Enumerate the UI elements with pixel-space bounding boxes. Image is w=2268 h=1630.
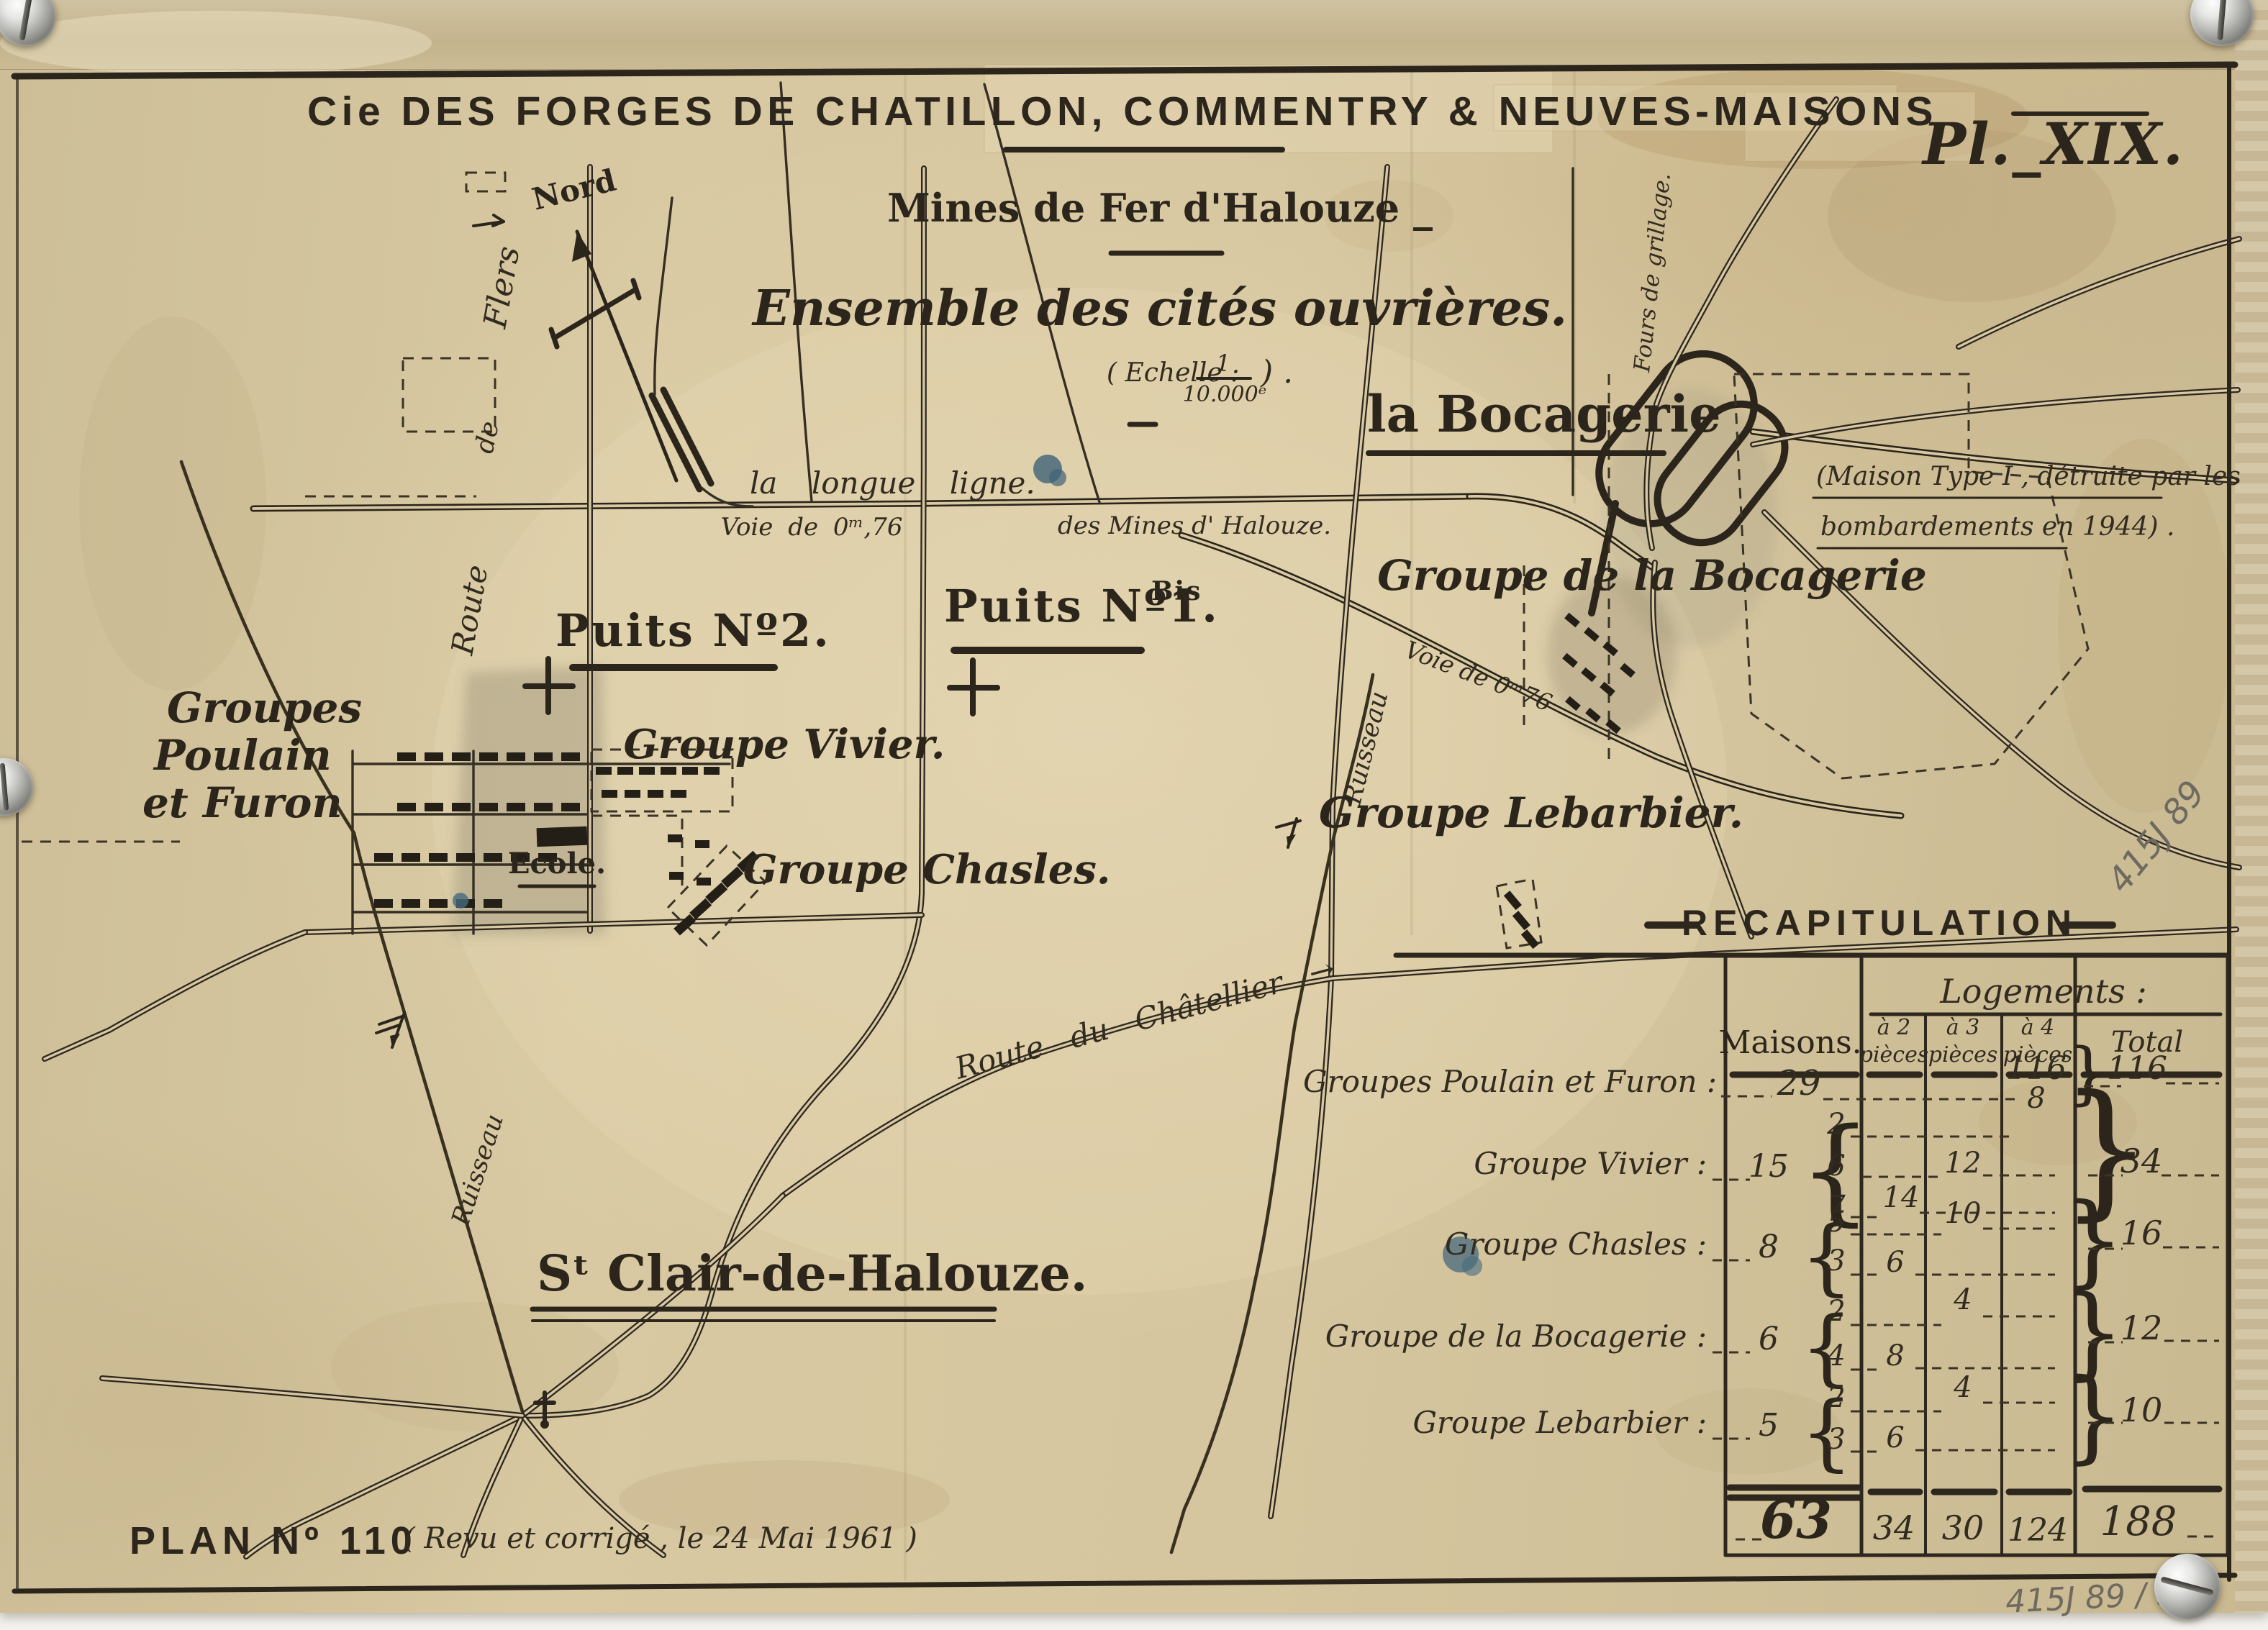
label-poulain: Poulain bbox=[153, 731, 332, 780]
label-groupe-lebarbier: Groupe Lebarbier. bbox=[1319, 788, 1743, 837]
rail-label-des-mines: des Mines d' Halouze. bbox=[1058, 511, 1331, 540]
total-3p: 30 bbox=[1942, 1508, 1984, 1547]
val-4p: 8 bbox=[2027, 1082, 2045, 1115]
scale-close: ) . bbox=[1260, 354, 1293, 391]
label-groupes: Groupes bbox=[167, 683, 362, 732]
row-total: 10 bbox=[2120, 1390, 2163, 1429]
val-3p: 4 bbox=[1953, 1371, 1972, 1404]
row-total: 16 bbox=[2120, 1214, 2163, 1252]
val-3p: 10 bbox=[1945, 1197, 1982, 1230]
screw-bottom-right bbox=[2154, 1554, 2221, 1620]
label-puits1-bis: Bis bbox=[1151, 576, 1202, 606]
ensemble-title: Ensemble des cités ouvrières. bbox=[751, 280, 1567, 337]
total-logements: 188 bbox=[2100, 1498, 2177, 1545]
scale-denominator: 10.000ᵉ bbox=[1183, 382, 1267, 407]
plan-number: PLAN Nº 110 bbox=[130, 1519, 417, 1562]
sub-maisons-1: 2 bbox=[1826, 1295, 1845, 1328]
label-ecole: Ecole. bbox=[508, 847, 606, 880]
row-label: Groupe de la Bocagerie : bbox=[1325, 1319, 1707, 1354]
col-maisons: Maisons. bbox=[1718, 1024, 1861, 1061]
row-maisons: 5 bbox=[1759, 1407, 1779, 1444]
row-label: Groupe Vivier : bbox=[1474, 1146, 1707, 1181]
sub-maisons-2: 4 bbox=[1826, 1339, 1845, 1372]
label-groupe-chasles: Groupe Chasles. bbox=[743, 846, 1111, 893]
table-totals: 63 34 30 124 188 bbox=[1736, 1489, 2219, 1550]
row-maisons: 8 bbox=[1759, 1229, 1779, 1265]
row-label: Groupe Lebarbier : bbox=[1412, 1405, 1707, 1440]
label-fours-grillage: Fours de grillage. bbox=[1629, 172, 1676, 374]
north-label: Nord bbox=[529, 163, 620, 217]
row-total: 12 bbox=[2120, 1308, 2163, 1347]
label-la-bocagerie: la Bocagerie bbox=[1367, 384, 1721, 444]
val-2p: 6 bbox=[1886, 1421, 1904, 1454]
col-2p-line2: pièces bbox=[1859, 1042, 1929, 1067]
scale-numerator: 1 bbox=[1216, 350, 1230, 377]
val-3p: 12 bbox=[1945, 1147, 1982, 1180]
label-st-clair: Sᵗ Clair-de-Halouze. bbox=[537, 1245, 1087, 1303]
val-2p: 14 bbox=[1883, 1181, 1920, 1214]
archive-cote-bottom: 415J 89 / 5 bbox=[2005, 1575, 2177, 1621]
row-label: Groupe Chasles : bbox=[1445, 1226, 1707, 1262]
sub-maisons-2: 6 bbox=[1827, 1149, 1845, 1183]
subtitle: Mines de Fer d'Halouze _ bbox=[887, 185, 1433, 231]
paper-stains bbox=[0, 11, 2231, 1539]
total-2p: 34 bbox=[1873, 1508, 1915, 1547]
revision-note: ( Revu et corrigé , le 24 Mai 1961 ) bbox=[404, 1522, 917, 1555]
label-groupe-bocagerie: Groupe de la Bocagerie bbox=[1377, 551, 1927, 600]
val-3p: 4 bbox=[1953, 1283, 1972, 1316]
row-maisons: 29 bbox=[1776, 1063, 1820, 1103]
val-2p: 6 bbox=[1886, 1246, 1904, 1279]
label-et-furon: et Furon bbox=[142, 778, 343, 827]
sub-maisons-2: 3 bbox=[1827, 1244, 1845, 1278]
row-maisons: 15 bbox=[1748, 1148, 1789, 1185]
rail-label-longue-ligne: la longue ligne. bbox=[750, 465, 1035, 501]
col-3p-line1: à 3 bbox=[1946, 1015, 1980, 1040]
road-label-de: de bbox=[470, 419, 505, 456]
col-logements: Logements : bbox=[1939, 972, 2147, 1011]
recap-title: RECAPITULATION bbox=[1682, 903, 2077, 943]
sub-maisons-2: 3 bbox=[1827, 1423, 1845, 1456]
flow-arrow-left bbox=[376, 1013, 404, 1047]
sub-maisons-1: 5 bbox=[1827, 1206, 1845, 1239]
label-groupe-vivier: Groupe Vivier. bbox=[624, 721, 945, 768]
plate-number: Pl._XIX. bbox=[1921, 110, 2185, 178]
row-total: 34 bbox=[2120, 1142, 2163, 1180]
note-line-1: (Maison Type I , détruite par les bbox=[1816, 462, 2241, 491]
road-label-flers: Flers bbox=[476, 244, 527, 332]
stream-label-ruisseau-left: Ruisseau bbox=[446, 1111, 509, 1230]
brace: } bbox=[2061, 1357, 2125, 1475]
col-2p-line1: à 2 bbox=[1877, 1015, 1911, 1040]
col-4p-line1: à 4 bbox=[2021, 1015, 2055, 1040]
ecole-building bbox=[537, 827, 588, 847]
label-puits2: Puits Nº2. bbox=[555, 604, 831, 657]
sub-maisons-1: 2 bbox=[1826, 1381, 1845, 1414]
main-title: Cie DES FORGES DE CHATILLON, COMMENTRY &… bbox=[307, 88, 1938, 135]
row-label: Groupes Poulain et Furon : bbox=[1303, 1064, 1717, 1099]
map-canvas: Cie DES FORGES DE CHATILLON, COMMENTRY &… bbox=[0, 0, 2268, 1630]
sub-maisons-1: 2 bbox=[1826, 1108, 1845, 1141]
flers-direction-arrow bbox=[473, 215, 504, 226]
row-maisons: 6 bbox=[1759, 1321, 1779, 1357]
rail-label-voie076-h: Voie de 0ᵐ,76 bbox=[721, 513, 903, 542]
total-4p: 124 bbox=[2008, 1512, 2068, 1549]
col-3p-line2: pièces bbox=[1928, 1042, 1998, 1067]
scanned-map-photo: Cie DES FORGES DE CHATILLON, COMMENTRY &… bbox=[0, 0, 2268, 1630]
note-line-2: bombardements en 1944) . bbox=[1820, 512, 2174, 542]
val-2p: 8 bbox=[1886, 1339, 1904, 1372]
total-maisons: 63 bbox=[1760, 1489, 1832, 1550]
